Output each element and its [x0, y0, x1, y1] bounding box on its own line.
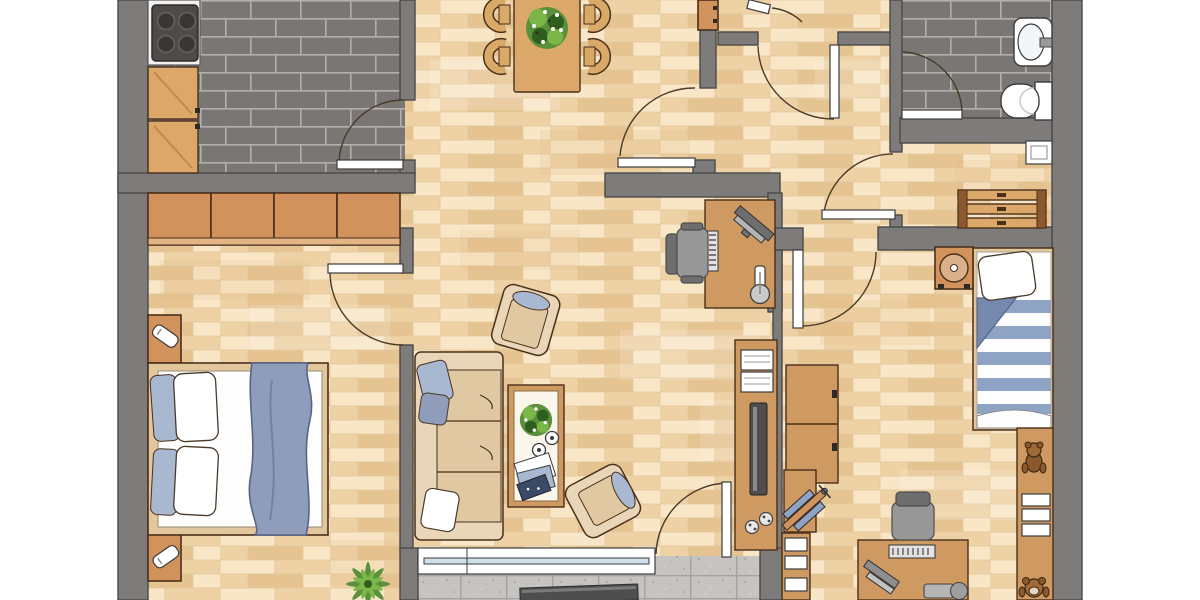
kids-office-chair	[892, 492, 934, 540]
desk-device-icon	[924, 583, 968, 600]
slatted-bench	[958, 190, 1046, 228]
sofa	[415, 352, 503, 540]
nightstand-top	[148, 315, 181, 363]
wall-shelf	[1017, 428, 1053, 600]
stove-icon	[152, 5, 198, 61]
pillow	[977, 250, 1037, 301]
outer-wall-right	[1052, 0, 1082, 600]
wall-hall-top-right	[838, 32, 892, 45]
keyboard-icon	[889, 545, 935, 558]
room-hallway	[698, 0, 718, 30]
kids-bed	[973, 248, 1053, 430]
wardrobe-row	[148, 193, 400, 245]
wall-kids-corner	[775, 228, 803, 250]
wall-bedroom-balcony	[400, 548, 418, 600]
tv-icon	[750, 403, 767, 495]
room-storage	[958, 190, 1046, 228]
wall-kitchen-dining	[400, 0, 415, 100]
nightstand-bottom	[148, 533, 181, 581]
floor-plan-svg	[0, 0, 1200, 600]
keyboard-icon	[707, 231, 718, 271]
bed-blanket	[249, 363, 311, 535]
dining-chair	[584, 44, 606, 70]
floor-plan	[0, 0, 1200, 600]
teddy-bear-icon	[1019, 578, 1049, 598]
dining-chair	[584, 2, 606, 28]
wall-kitchen-bedroom	[118, 173, 415, 193]
balcony-sliding-window	[418, 548, 655, 574]
wall-hall-top-left	[718, 32, 758, 45]
wall-hall-corner	[693, 160, 715, 174]
storage-window	[1026, 141, 1052, 164]
washbasin-icon	[1014, 18, 1052, 66]
coffee-table	[508, 385, 564, 507]
bookshelf	[782, 533, 810, 600]
shoe-cabinet	[698, 0, 718, 30]
table-plant-icon	[526, 7, 568, 49]
coffee-table-plant-icon	[520, 404, 552, 436]
tv-sideboard	[735, 340, 777, 550]
wall-living-balcony-end	[760, 548, 782, 600]
kids-desk	[858, 540, 968, 600]
toilet-icon	[1001, 82, 1052, 120]
record-player-stand	[935, 247, 973, 289]
outer-wall-left	[118, 0, 148, 600]
room-kitchen	[148, 0, 200, 173]
double-bed	[148, 363, 328, 535]
kids-wardrobe	[786, 365, 838, 483]
dining-chair	[488, 2, 510, 28]
dining-chair	[488, 44, 510, 70]
wall-bathroom-bottom	[900, 118, 1052, 143]
wall-bedroom-living	[400, 345, 413, 550]
wall-study-top	[605, 173, 780, 197]
wall-dining-hall	[700, 28, 716, 88]
